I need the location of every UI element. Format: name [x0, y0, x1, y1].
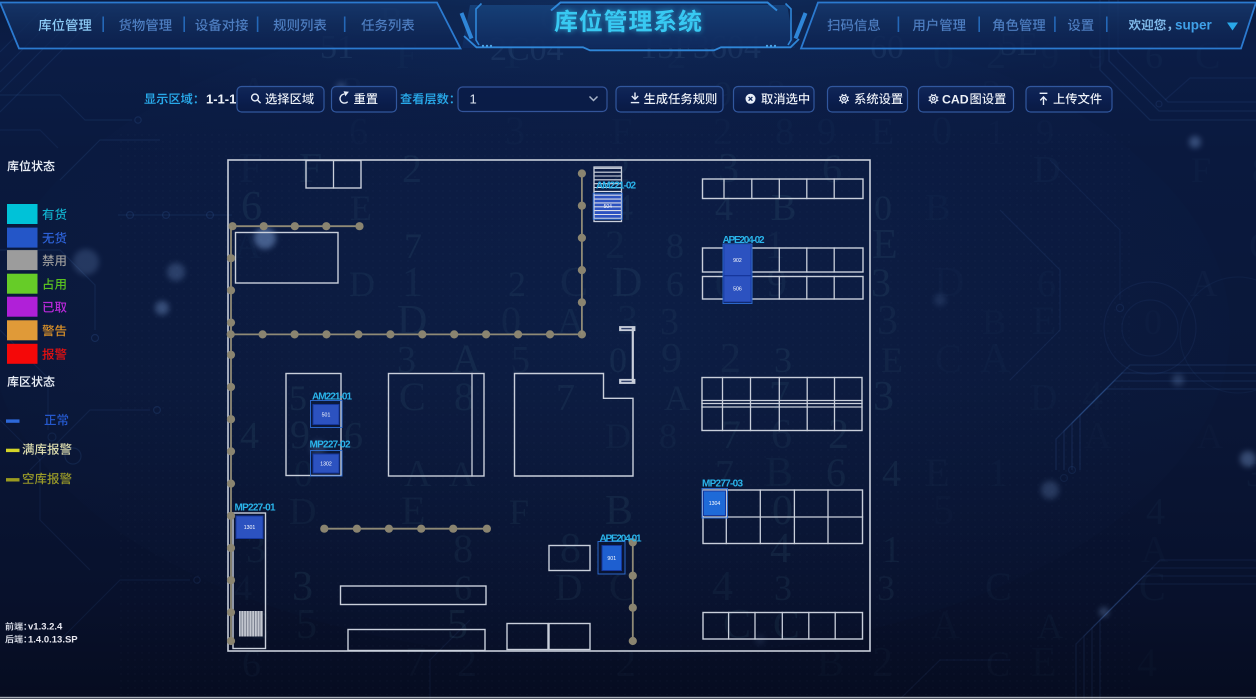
svg-text:B: B — [925, 187, 950, 229]
svg-text:D: D — [605, 416, 631, 456]
svg-text:4: 4 — [882, 453, 901, 495]
svg-text:APE204-01: APE204-01 — [600, 534, 642, 545]
svg-text:1304: 1304 — [709, 501, 721, 507]
svg-text:506: 506 — [733, 287, 742, 293]
svg-text:8: 8 — [1252, 150, 1256, 190]
svg-text:1: 1 — [987, 112, 1005, 152]
svg-text:8: 8 — [560, 526, 581, 572]
svg-text:3: 3 — [877, 568, 895, 608]
svg-text:A: A — [1197, 416, 1223, 456]
svg-text:D: D — [349, 264, 375, 304]
svg-text:4: 4 — [1082, 374, 1103, 420]
svg-text:A: A — [449, 454, 475, 494]
svg-text:1302: 1302 — [320, 461, 332, 467]
svg-text:8: 8 — [775, 111, 794, 153]
svg-text:E: E — [1032, 298, 1056, 343]
svg-text:E: E — [350, 188, 372, 228]
svg-text:v1.3.2.4: v1.3.2.4 — [28, 622, 63, 633]
svg-text:D: D — [1030, 377, 1057, 419]
svg-text:6: 6 — [666, 264, 684, 304]
svg-text:2: 2 — [872, 640, 893, 686]
svg-text:E: E — [1031, 640, 1057, 686]
svg-text:3: 3 — [718, 146, 739, 192]
svg-text:4: 4 — [770, 526, 791, 572]
svg-text:C: C — [935, 336, 962, 381]
svg-text:7: 7 — [556, 377, 575, 419]
svg-text:9: 9 — [767, 260, 787, 305]
svg-text:B: B — [605, 488, 633, 534]
svg-text:0: 0 — [609, 340, 627, 380]
svg-text:D: D — [1033, 149, 1060, 191]
svg-text:1301: 1301 — [244, 525, 256, 531]
svg-text:D: D — [934, 260, 964, 306]
svg-text:AM221-01: AM221-01 — [312, 392, 352, 403]
svg-text:0: 0 — [1144, 302, 1162, 342]
svg-text:C: C — [986, 644, 1010, 684]
svg-text:1-1-1: 1-1-1 — [206, 91, 236, 106]
svg-text:1: 1 — [882, 529, 901, 571]
svg-text:A: A — [234, 225, 262, 267]
svg-text:8: 8 — [454, 374, 474, 419]
svg-text:1.4.0.13.SP: 1.4.0.13.SP — [28, 634, 78, 645]
svg-text:CAD: CAD — [942, 92, 969, 106]
svg-text:8: 8 — [666, 226, 684, 266]
svg-text:6: 6 — [241, 184, 262, 230]
svg-text:C: C — [1249, 225, 1256, 267]
svg-text:MP277-03: MP277-03 — [702, 479, 743, 490]
svg-text:3: 3 — [873, 374, 894, 420]
svg-text:A: A — [1084, 415, 1112, 457]
svg-text:1: 1 — [988, 450, 1008, 495]
svg-text:8: 8 — [453, 526, 473, 571]
svg-text:6: 6 — [349, 111, 368, 153]
svg-text:4: 4 — [240, 415, 259, 457]
svg-text:3: 3 — [505, 108, 525, 153]
svg-text:2: 2 — [616, 640, 636, 685]
svg-text:C: C — [1139, 564, 1166, 609]
svg-text:E: E — [871, 111, 894, 153]
svg-text:C: C — [723, 602, 751, 648]
svg-text:C: C — [773, 602, 800, 647]
svg-text:7: 7 — [721, 412, 741, 457]
svg-text:1: 1 — [470, 92, 477, 107]
svg-text:504: 504 — [604, 204, 613, 210]
svg-text:4: 4 — [1146, 491, 1165, 533]
svg-text:B: B — [817, 640, 844, 685]
svg-text:5: 5 — [933, 488, 954, 534]
svg-text:9: 9 — [661, 336, 682, 382]
svg-text:8: 8 — [659, 416, 677, 456]
svg-text:6: 6 — [826, 450, 846, 495]
svg-text:APE204-02: APE204-02 — [723, 235, 765, 246]
svg-text:6: 6 — [822, 146, 842, 191]
svg-text:AM221-02: AM221-02 — [596, 181, 636, 192]
svg-text:3: 3 — [877, 298, 898, 344]
svg-text:901: 901 — [607, 556, 616, 562]
svg-text:3: 3 — [617, 298, 638, 344]
svg-text:F: F — [611, 111, 632, 153]
svg-text:F: F — [509, 492, 529, 532]
svg-text:MP227-01: MP227-01 — [235, 503, 276, 514]
svg-text:6: 6 — [242, 643, 261, 685]
svg-text:3: 3 — [1246, 454, 1256, 494]
svg-text:C: C — [399, 374, 426, 419]
svg-text:A: A — [1190, 263, 1218, 305]
svg-text:MP227-02: MP227-02 — [310, 440, 351, 451]
svg-text:C: C — [985, 564, 1012, 609]
svg-text:A: A — [980, 336, 1011, 382]
svg-text:9: 9 — [1036, 112, 1054, 152]
svg-text:super: super — [1175, 18, 1213, 33]
svg-text:2: 2 — [720, 336, 741, 382]
svg-text:D: D — [289, 491, 316, 533]
svg-text:A: A — [931, 602, 960, 647]
svg-text:4: 4 — [1137, 640, 1157, 685]
svg-text:A: A — [664, 378, 690, 418]
svg-text:D: D — [555, 567, 582, 609]
svg-text:0: 0 — [932, 108, 952, 153]
svg-text:5: 5 — [296, 602, 317, 648]
svg-text:2: 2 — [402, 146, 422, 191]
svg-text:7: 7 — [405, 640, 426, 686]
svg-text:902: 902 — [733, 258, 742, 264]
svg-text:1: 1 — [1250, 529, 1256, 571]
svg-text:9: 9 — [290, 412, 310, 457]
svg-text:F: F — [299, 146, 322, 192]
svg-text:501: 501 — [322, 412, 331, 418]
svg-text:6: 6 — [344, 415, 363, 457]
svg-text:2: 2 — [457, 640, 477, 685]
svg-text:4: 4 — [234, 568, 252, 608]
svg-text:F: F — [1191, 150, 1211, 190]
